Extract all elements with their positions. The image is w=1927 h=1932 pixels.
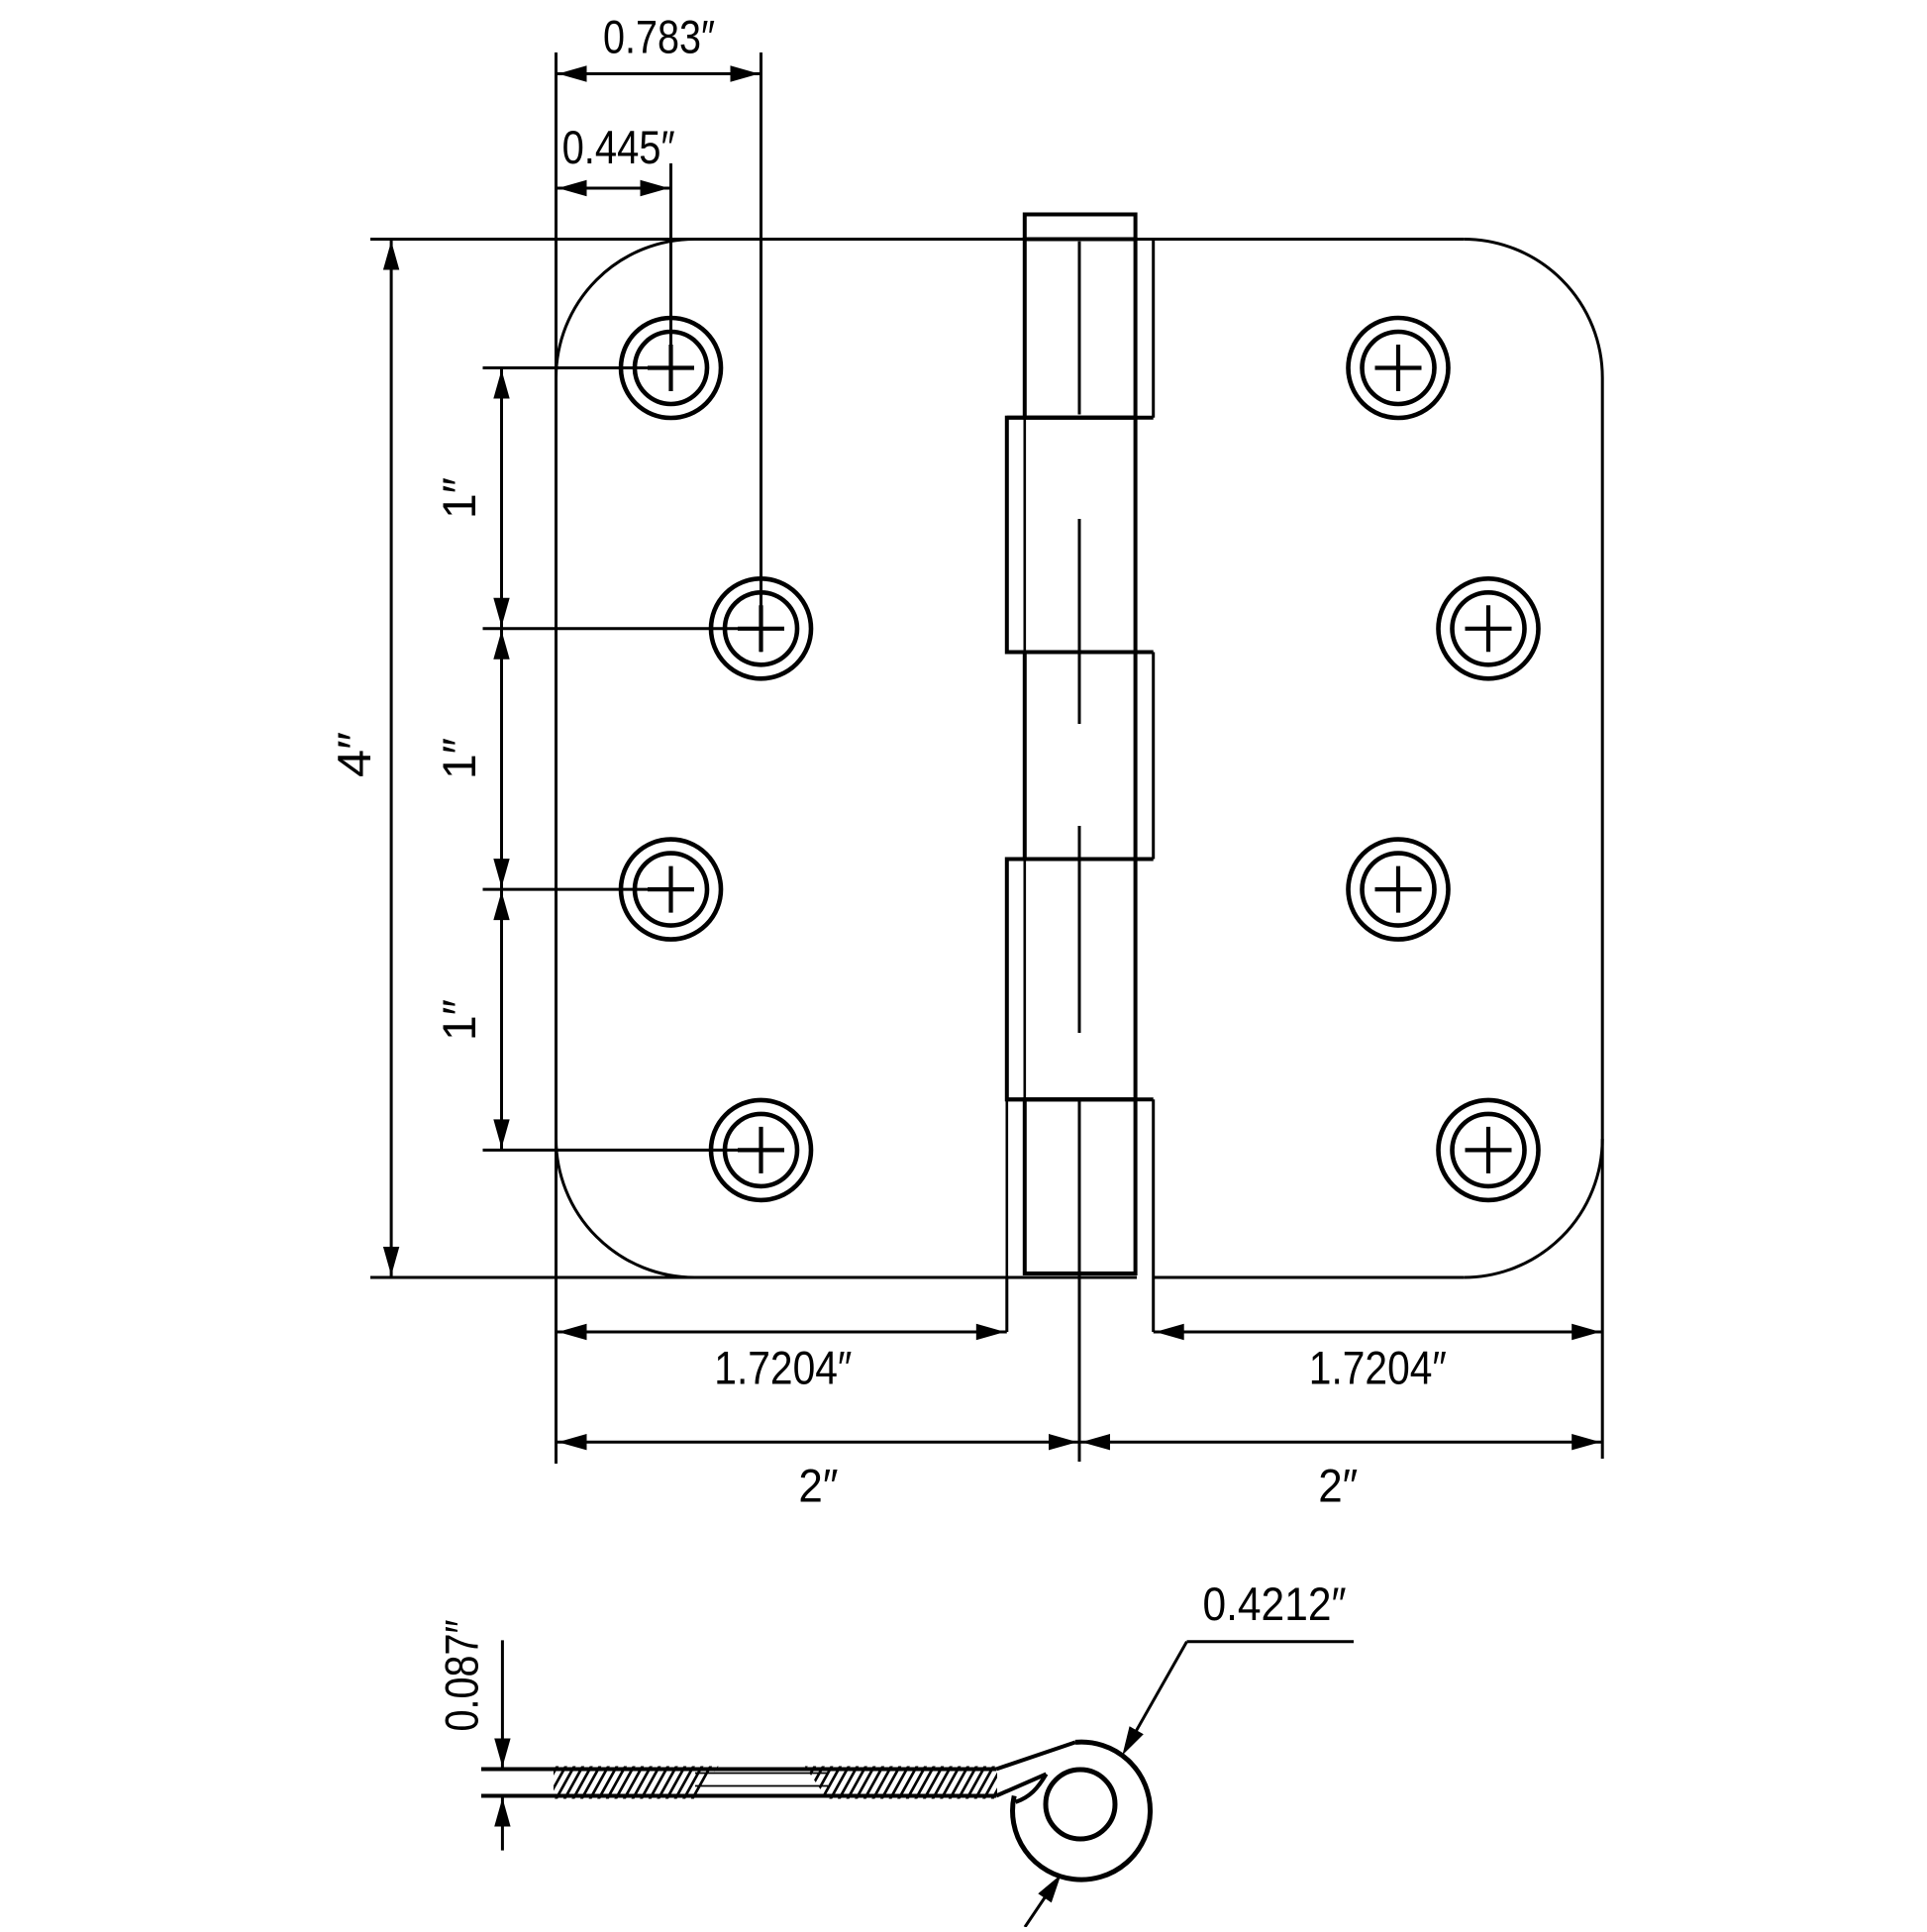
svg-text:1″: 1″ — [433, 738, 485, 779]
svg-text:1″: 1″ — [433, 477, 485, 519]
svg-text:0.445″: 0.445″ — [562, 121, 675, 173]
svg-text:2″: 2″ — [798, 1460, 838, 1512]
svg-text:4″: 4″ — [328, 732, 380, 777]
svg-text:1.7204″: 1.7204″ — [1309, 1341, 1447, 1393]
svg-text:2″: 2″ — [1318, 1460, 1358, 1512]
svg-text:1.7204″: 1.7204″ — [714, 1341, 852, 1393]
svg-text:1″: 1″ — [433, 999, 485, 1041]
svg-text:0.087″: 0.087″ — [435, 1620, 487, 1732]
svg-text:0.783″: 0.783″ — [603, 11, 715, 63]
svg-text:0.4212″: 0.4212″ — [1203, 1577, 1347, 1630]
